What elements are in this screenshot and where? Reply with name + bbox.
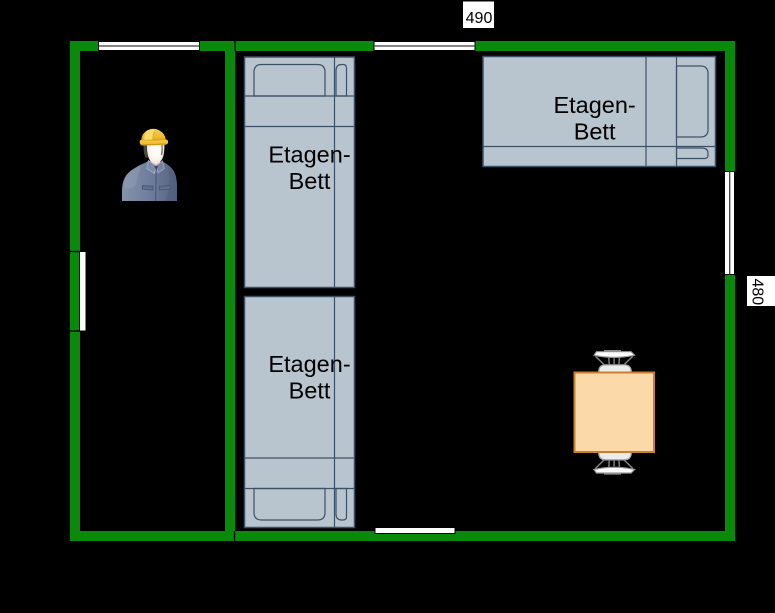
svg-text:Bett: Bett — [289, 168, 331, 194]
svg-text:Etagen-: Etagen- — [553, 92, 635, 118]
svg-text:Bett: Bett — [574, 118, 616, 144]
svg-text:480: 480 — [749, 279, 766, 306]
svg-text:Bett: Bett — [289, 378, 331, 404]
svg-text:Etagen-: Etagen- — [268, 351, 350, 377]
svg-text:490: 490 — [466, 10, 493, 27]
svg-text:Etagen-: Etagen- — [268, 141, 350, 167]
